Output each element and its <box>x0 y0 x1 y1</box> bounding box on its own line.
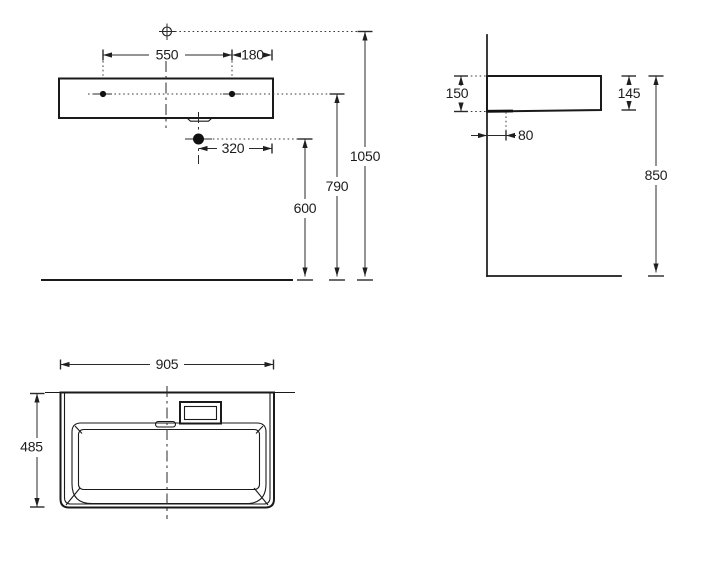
dim-drain-height-group: 600 <box>294 139 317 280</box>
front-view: 550 180 <box>42 24 381 281</box>
dim-width-group: 905 <box>61 356 274 372</box>
dim-rim-height-group: 850 <box>645 76 668 276</box>
dim-drain-height-label: 600 <box>294 200 317 216</box>
dim-rim-height-label: 850 <box>645 167 668 183</box>
mounting-hole-left <box>100 91 106 97</box>
dim-depth-back-label: 150 <box>446 85 469 101</box>
drain-mark <box>193 134 204 145</box>
dim-front-height-group: 145 <box>618 76 641 110</box>
faucet-center-mark-icon <box>159 24 175 41</box>
dim-mixer-height-group: 1050 <box>350 32 381 281</box>
drawing-canvas: 550 180 <box>0 0 703 574</box>
dim-drain-to-edge-label: 320 <box>222 140 245 156</box>
dim-hole-height-group: 790 <box>326 94 349 280</box>
basin-side-profile <box>487 76 601 112</box>
dim-drain-offset-group: 80 <box>471 127 534 143</box>
dim-width-label: 905 <box>156 356 179 372</box>
dim-hole-height-label: 790 <box>326 178 349 194</box>
dim-hole-to-edge-label: 180 <box>241 47 264 63</box>
dim-front-height-label: 145 <box>618 85 641 101</box>
drain-point <box>185 112 301 164</box>
dim-drain-to-edge-group: 320 <box>199 140 273 156</box>
side-view: 150 145 80 850 <box>446 35 668 276</box>
washbasin-technical-drawing: 550 180 <box>0 0 703 574</box>
mounting-hole-right <box>229 91 235 97</box>
dim-hole-spacing-label: 550 <box>156 47 179 63</box>
dim-drain-offset-label: 80 <box>518 127 534 143</box>
dim-depth-group: 485 <box>20 394 44 508</box>
dim-depth-back-group: 150 <box>446 76 486 112</box>
dim-depth-label: 485 <box>20 439 43 455</box>
dim-mixer-height-label: 1050 <box>350 148 381 164</box>
plan-view: 905 <box>20 356 295 519</box>
